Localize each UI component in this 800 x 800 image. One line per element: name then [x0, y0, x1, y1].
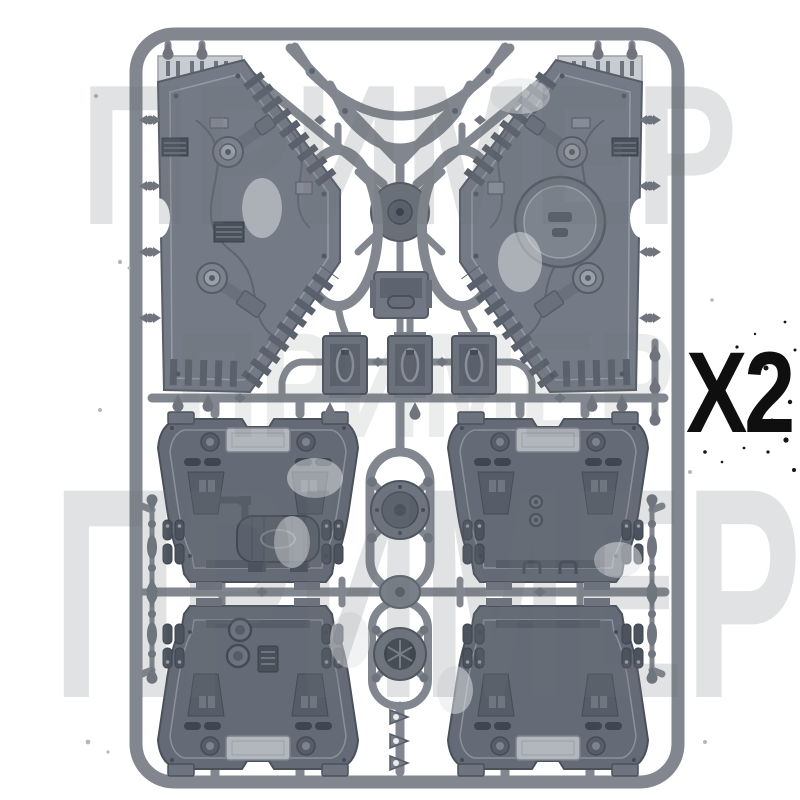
- sprue-illustration: [0, 0, 800, 800]
- sprue-product-photo: ПРИМЕР ПРИМЕР ПРИМЕР X2: [0, 0, 800, 800]
- crate-piece: [370, 272, 432, 318]
- hatch-piece-3: [452, 332, 496, 398]
- container-panel-bottom-right: [448, 598, 648, 776]
- hatch-piece-1: [323, 332, 367, 398]
- midrail-disc: [380, 576, 420, 608]
- hatch-pieces: [323, 332, 496, 398]
- hatch-piece-2: [388, 332, 432, 398]
- container-panel-bottom-left: [158, 598, 358, 776]
- quantity-label: X2: [686, 336, 792, 451]
- clip-pieces: [390, 710, 408, 770]
- door-panel-left: [146, 56, 340, 392]
